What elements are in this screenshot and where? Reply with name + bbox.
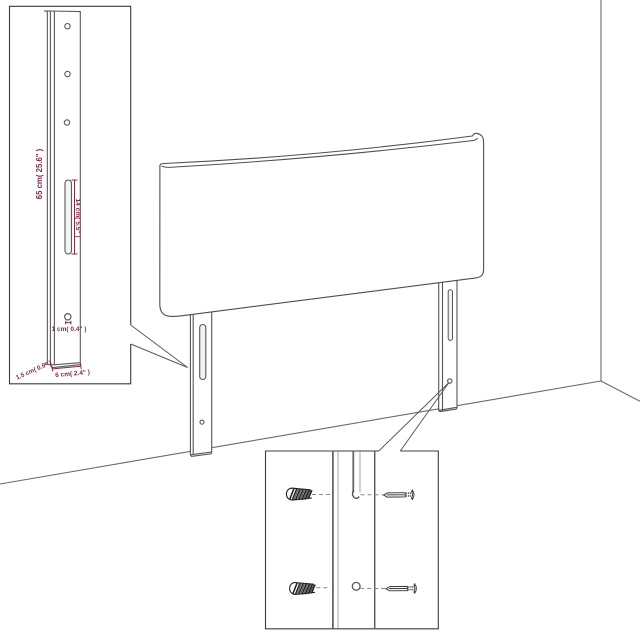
svg-text:65 cm( 25.6" ): 65 cm( 25.6" ): [35, 148, 44, 199]
svg-text:14 cm( 5.5" ): 14 cm( 5.5" ): [74, 198, 81, 237]
svg-text:1 cm( 0.4" ): 1 cm( 0.4" ): [52, 326, 87, 333]
